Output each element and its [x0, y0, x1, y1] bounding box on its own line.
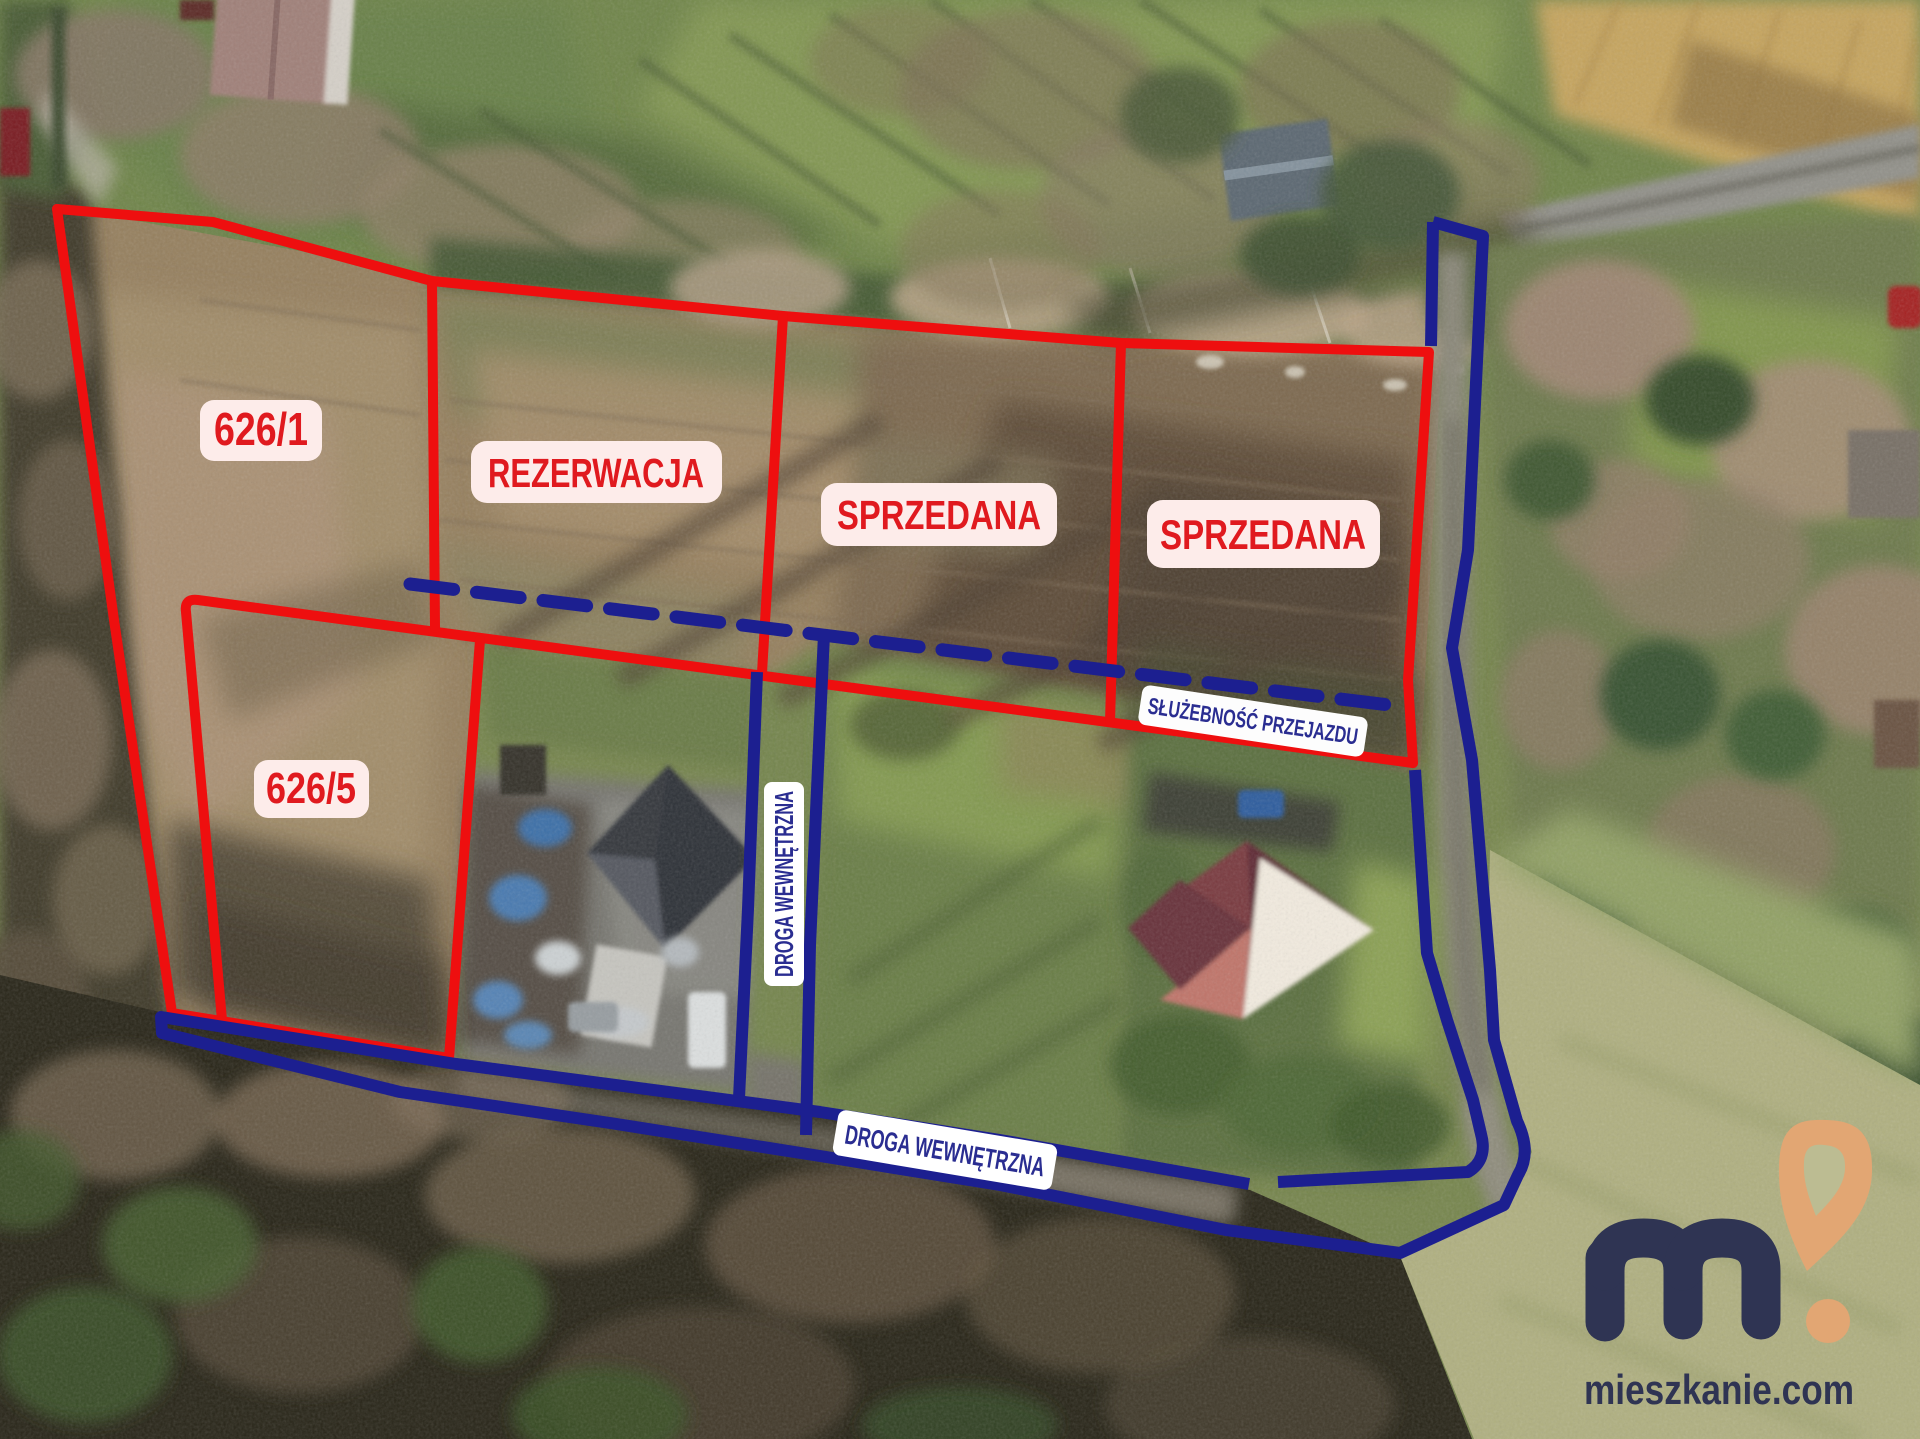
svg-text:mieszkanie.com: mieszkanie.com [1584, 1366, 1854, 1413]
svg-text:626/5: 626/5 [266, 764, 356, 813]
svg-text:SPRZEDANA: SPRZEDANA [837, 492, 1041, 538]
svg-text:DROGA WEWNĘTRZNA: DROGA WEWNĘTRZNA [769, 791, 799, 977]
svg-text:626/1: 626/1 [214, 403, 308, 455]
svg-text:SPRZEDANA: SPRZEDANA [1160, 511, 1366, 558]
svg-text:REZERWACJA: REZERWACJA [488, 450, 704, 496]
